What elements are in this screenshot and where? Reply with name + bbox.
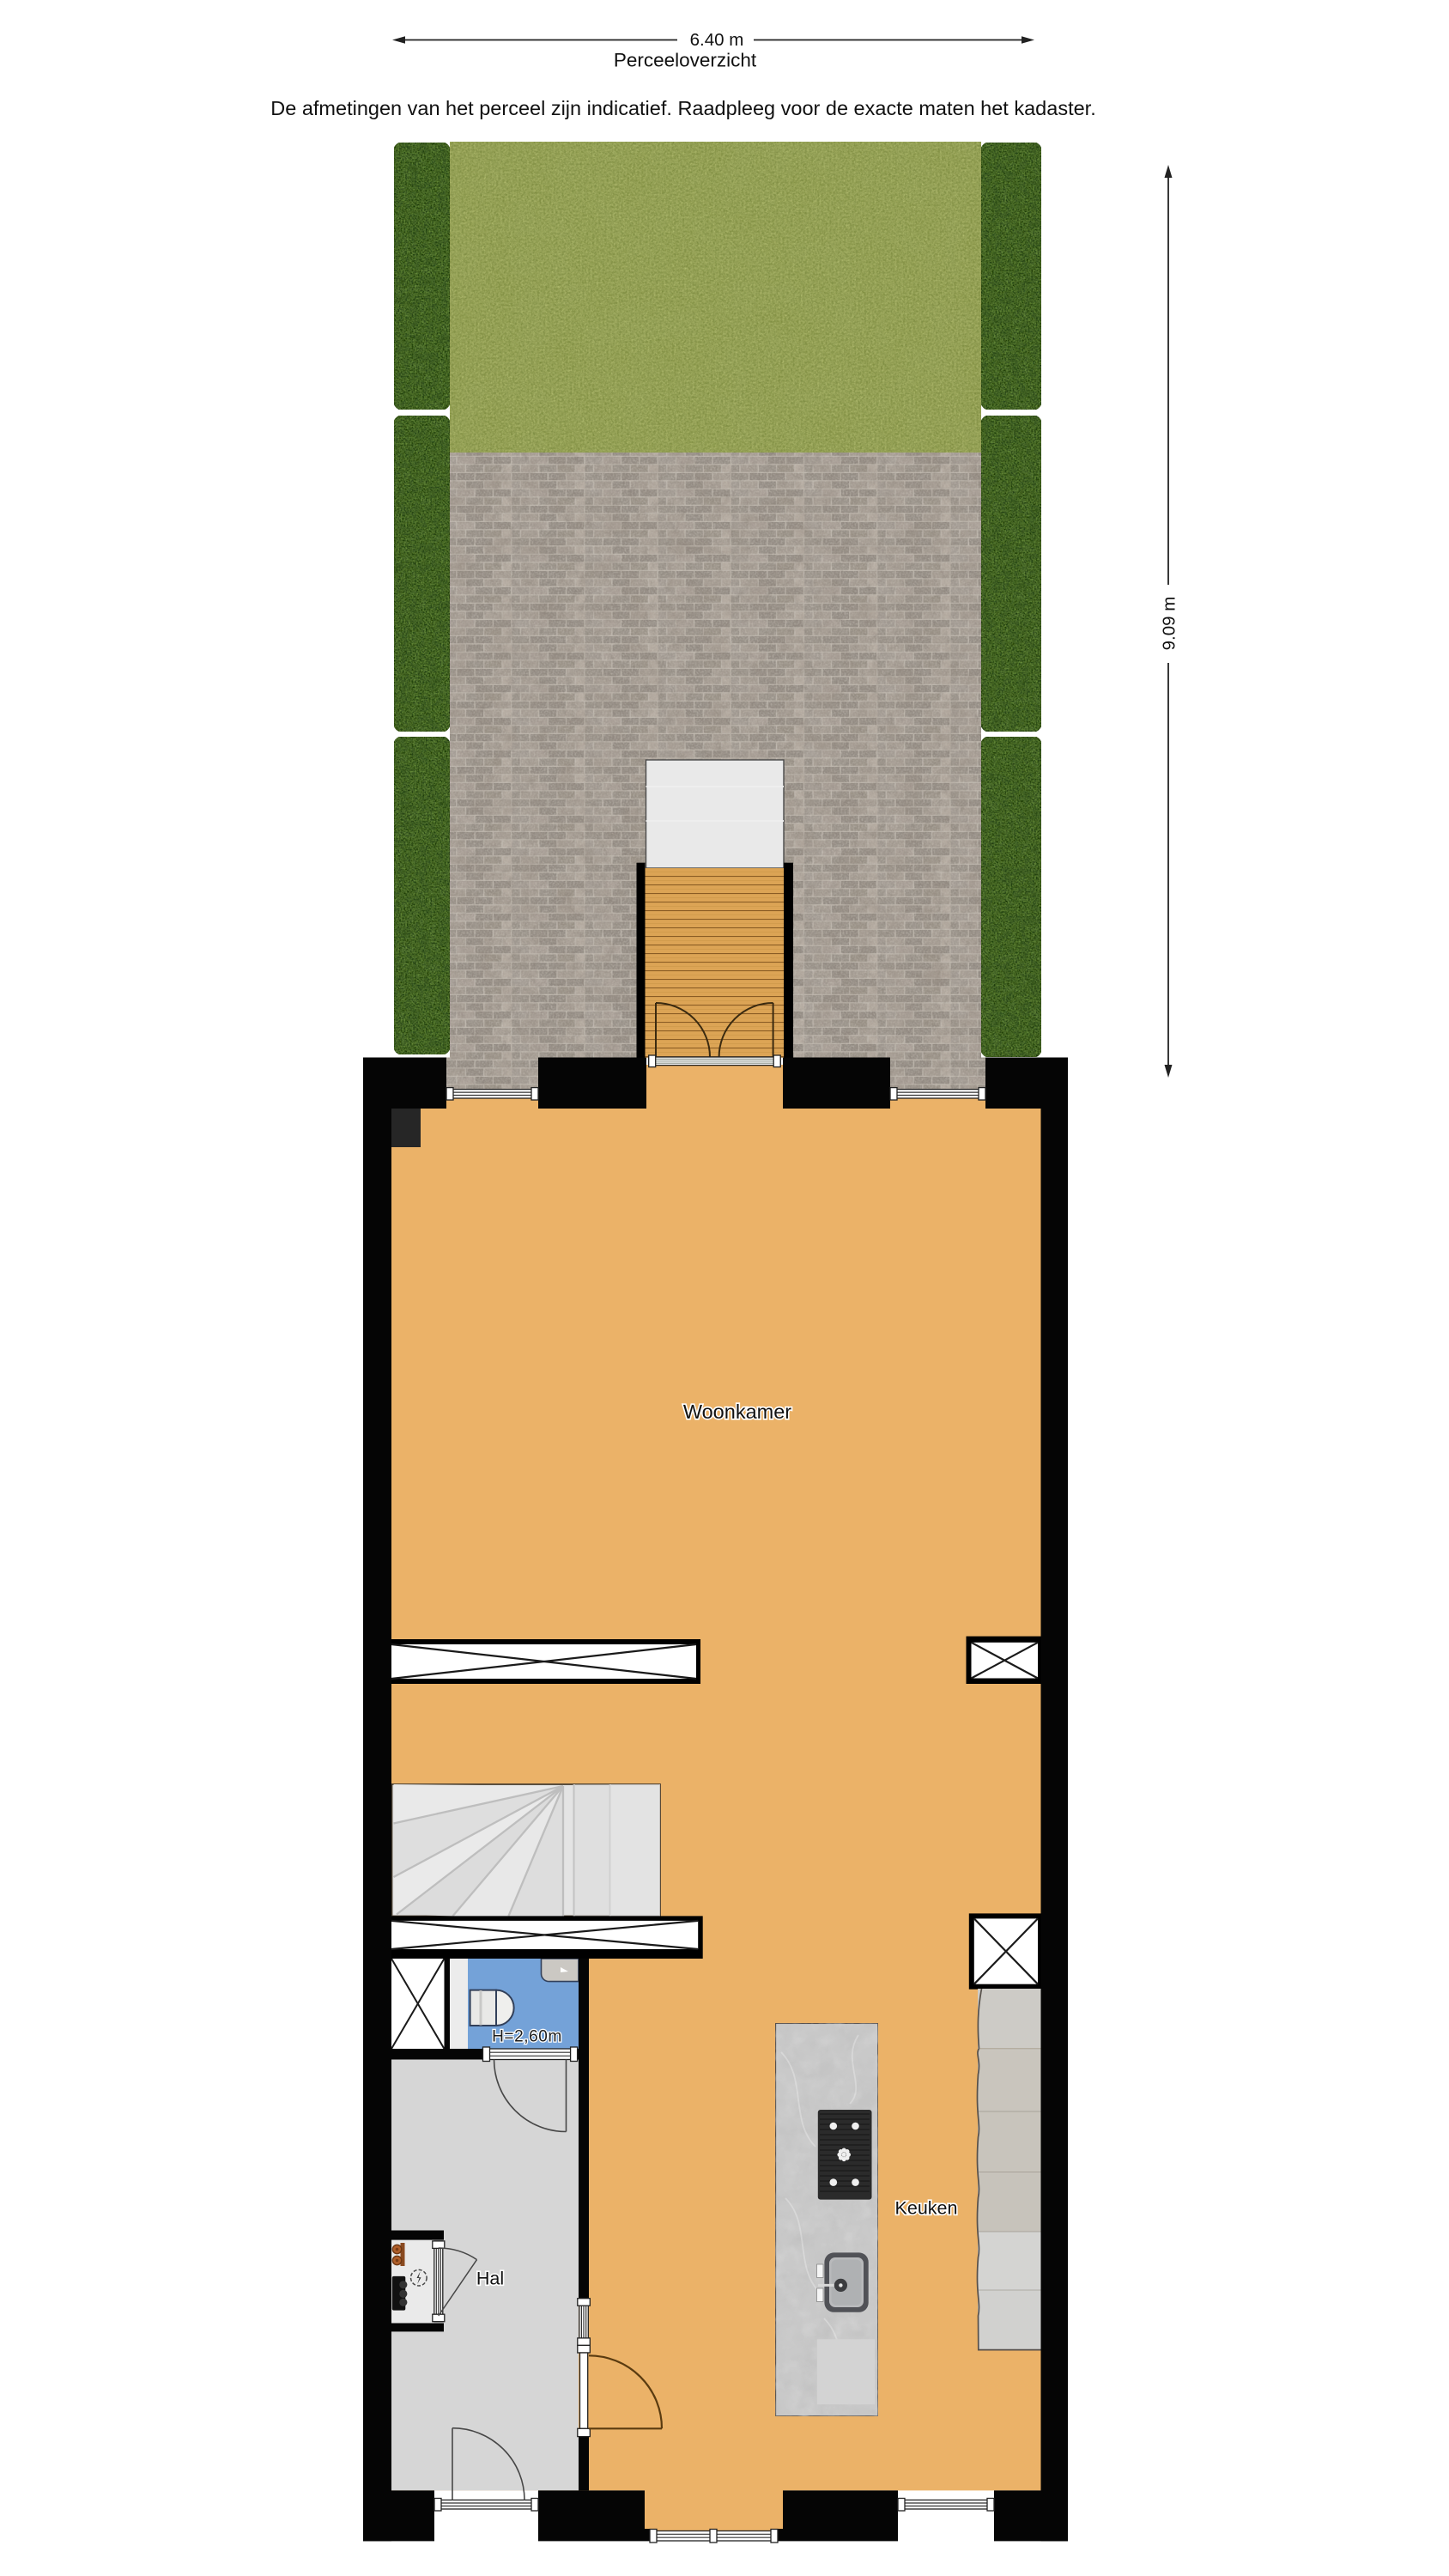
svg-text:9.09 m: 9.09 m: [1160, 597, 1179, 651]
svg-text:Hal: Hal: [476, 2269, 504, 2289]
svg-text:De afmetingen van het perceel: De afmetingen van het perceel zijn indic…: [270, 97, 1095, 119]
svg-text:6.40 m: 6.40 m: [690, 30, 744, 50]
svg-text:Keuken: Keuken: [895, 2198, 958, 2219]
svg-text:Perceeloverzicht: Perceeloverzicht: [614, 50, 757, 71]
svg-text:Woonkamer: Woonkamer: [683, 1400, 791, 1423]
svg-text:H=2,60m: H=2,60m: [492, 2028, 562, 2046]
